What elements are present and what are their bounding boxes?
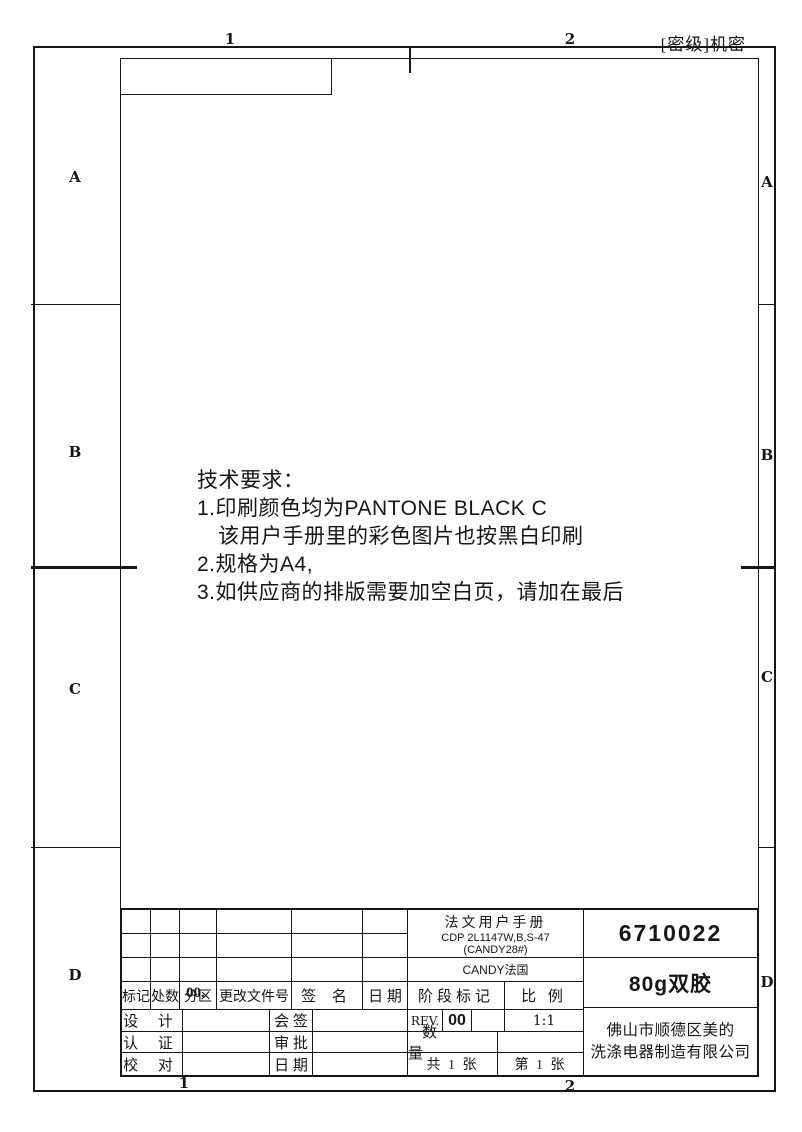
approval-design-label: 设 计 <box>122 1010 183 1032</box>
company-box: 佛山市顺德区美的 洗涤电器制造有限公司 <box>584 1008 757 1075</box>
rev-header-sign: 签 名 <box>292 982 363 1010</box>
zone-col-2-bottom: 2 <box>554 1077 586 1095</box>
rev-cell <box>217 910 292 934</box>
approval-countersign-label: 会 签 <box>270 1010 313 1032</box>
scale-value: 1:1 <box>505 1010 584 1032</box>
rev-cell <box>180 958 217 982</box>
rev-zone-overlay: 00. <box>186 985 205 1002</box>
note-line: 1.印刷颜色均为PANTONE BLACK C <box>197 495 657 523</box>
rev-cell <box>292 910 363 934</box>
sheets-total: 共 1 张 <box>408 1053 498 1075</box>
approval-audit-value <box>313 1032 408 1053</box>
approval-certify-label: 认 证 <box>122 1032 183 1053</box>
rev-cell <box>217 958 292 982</box>
sheet-current: 第 1 张 <box>498 1053 584 1075</box>
company-name-line1: 佛山市顺德区美的 <box>606 1020 734 1042</box>
rev-cell <box>122 958 151 982</box>
approval-proof-label: 校 对 <box>122 1053 183 1075</box>
product-model: CDP 2L1147W,B,S-47 <box>441 932 549 944</box>
approval-proof-value <box>183 1053 270 1075</box>
note-line: 3.如供应商的排版需要加空白页，请加在最后 <box>197 579 657 607</box>
rev-cell <box>122 910 151 934</box>
note-line: 该用户手册里的彩色图片也按黑白印刷 <box>197 523 657 551</box>
notes-heading: 技术要求： <box>197 467 657 495</box>
company-name-line2: 洗涤电器制造有限公司 <box>590 1042 750 1064</box>
quantity-label: 数 量 <box>408 1032 498 1053</box>
approval-date-label: 日 期 <box>270 1053 313 1075</box>
drawing-sheet: 1 2 [密级]机密 1 2 A B C D A B C D 技术要求： 1.印… <box>0 0 802 1132</box>
left-zone-divider-ab <box>31 304 120 305</box>
rev-cell <box>151 910 180 934</box>
rev-cell <box>292 958 363 982</box>
rev-header-doc-no: 更改文件号 <box>217 982 292 1010</box>
rev-cell <box>292 934 363 958</box>
top-zone-divider-tick <box>409 46 411 73</box>
zone-row-b-left: B <box>61 443 89 461</box>
top-left-registry-box <box>120 58 332 95</box>
zone-row-b-right: B <box>753 446 781 464</box>
stage-mark-header: 阶段标记 <box>408 982 505 1010</box>
rev-header-date: 日 期 <box>363 982 408 1010</box>
product-info-box: 法文用户手册 CDP 2L1147W,B,S-47 (CANDY28#) <box>408 910 584 958</box>
rev-cell <box>180 934 217 958</box>
rev-cell <box>363 910 408 934</box>
center-fold-mark-right <box>741 566 776 569</box>
classification-label: [密级]机密 <box>610 30 746 55</box>
zone-col-2-top: 2 <box>554 30 586 48</box>
rev-header-zone: 分区 00. <box>180 982 217 1010</box>
rev-cell <box>151 934 180 958</box>
approval-audit-label: 审 批 <box>270 1032 313 1053</box>
rev-cell <box>363 958 408 982</box>
rev-cell <box>151 958 180 982</box>
rev-cell <box>217 934 292 958</box>
center-fold-mark-left <box>31 566 137 569</box>
title-block: 标记 处数 分区 00. 更改文件号 签 名 日 期 设 计 会 签 认 证 审… <box>120 908 759 1077</box>
approval-date-value <box>313 1053 408 1075</box>
part-number: 6710022 <box>584 910 757 958</box>
zone-row-a-right: A <box>753 173 781 191</box>
product-name: 法文用户手册 <box>445 912 547 932</box>
scale-header: 比 例 <box>505 982 584 1010</box>
zone-row-d-left: D <box>61 966 89 984</box>
quantity-value <box>498 1032 584 1053</box>
approval-certify-value <box>183 1032 270 1053</box>
right-zone-divider-cd <box>759 847 776 848</box>
zone-row-c-left: C <box>61 680 89 698</box>
product-brand: CANDY法国 <box>408 958 584 982</box>
zone-col-1-top: 1 <box>214 30 246 48</box>
right-zone-divider-ab <box>759 304 776 305</box>
rev-cell <box>122 934 151 958</box>
note-line: 2.规格为A4, <box>197 551 657 579</box>
approval-countersign-value <box>313 1010 408 1032</box>
rev-cell <box>363 934 408 958</box>
left-zone-divider-cd <box>31 847 120 848</box>
rev-cell <box>180 910 217 934</box>
product-code: (CANDY28#) <box>463 944 527 956</box>
zone-row-c-right: C <box>753 668 781 686</box>
paper-spec: 80g双胶 <box>584 958 757 1008</box>
technical-notes: 技术要求： 1.印刷颜色均为PANTONE BLACK C 该用户手册里的彩色图… <box>197 467 657 607</box>
approval-design-value <box>183 1010 270 1032</box>
zone-row-a-left: A <box>61 168 89 186</box>
rev-header-count: 处数 <box>151 982 180 1010</box>
rev-header-mark: 标记 <box>122 982 151 1010</box>
